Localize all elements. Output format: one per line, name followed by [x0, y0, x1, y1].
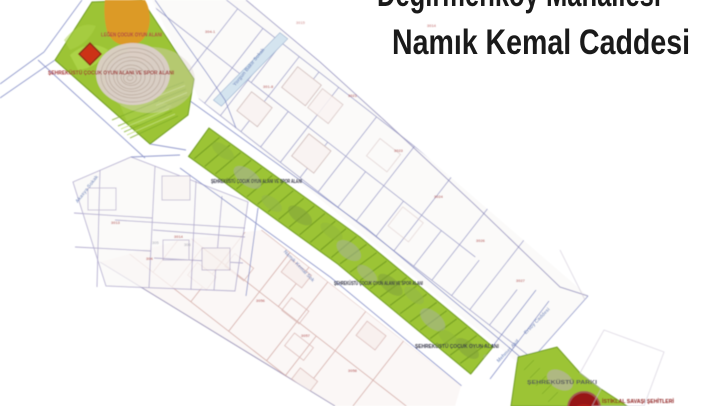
svg-text:301-8: 301-8 — [263, 84, 274, 89]
svg-text:304-1: 304-1 — [205, 29, 216, 34]
svg-text:3026: 3026 — [476, 238, 486, 243]
svg-text:3014: 3014 — [174, 234, 184, 239]
svg-text:İSTİKLAL SAVAŞI ŞEHİTLERİ: İSTİKLAL SAVAŞI ŞEHİTLERİ — [602, 398, 675, 405]
svg-text:3015: 3015 — [296, 20, 306, 25]
svg-text:3013: 3013 — [111, 220, 121, 225]
svg-text:ŞEHREKÜSTÜ ÇOCUK OYUN ALANI: ŞEHREKÜSTÜ ÇOCUK OYUN ALANI — [415, 343, 499, 350]
svg-text:3027: 3027 — [516, 278, 526, 283]
svg-text:3056: 3056 — [256, 298, 266, 303]
svg-text:LEĞEN ÇOCUK OYUN ALANI: LEĞEN ÇOCUK OYUN ALANI — [101, 31, 163, 39]
svg-text:305: 305 — [152, 240, 159, 245]
svg-text:3057: 3057 — [301, 333, 311, 338]
svg-text:Namık Kemal Caddesi: Namık Kemal Caddesi — [392, 23, 690, 62]
svg-text:3023: 3023 — [394, 148, 404, 153]
svg-text:306: 306 — [184, 242, 191, 247]
svg-text:3024: 3024 — [434, 194, 444, 199]
svg-text:3021: 3021 — [348, 93, 358, 98]
svg-text:ŞEHREKÜSTÜ ÇOCUK OYUN ALANI VE: ŞEHREKÜSTÜ ÇOCUK OYUN ALANI VE SPOR ALAN… — [48, 70, 175, 77]
svg-text:Değirmenköy Mahallesi: Değirmenköy Mahallesi — [377, 0, 661, 14]
svg-text:ŞEHREKÜSTÜ PARKI: ŞEHREKÜSTÜ PARKI — [527, 379, 598, 386]
svg-text:304: 304 — [146, 256, 153, 261]
svg-text:ŞEHREKÜSTÜ ÇOCUK OYUN ALANI VE: ŞEHREKÜSTÜ ÇOCUK OYUN ALANI VE SPOR ALAN… — [334, 280, 423, 287]
svg-text:3058: 3058 — [348, 368, 358, 373]
svg-text:ŞEHREKÜSTÜ ÇOCUK OYUN ALANI VE: ŞEHREKÜSTÜ ÇOCUK OYUN ALANI VE SPOR ALAN… — [211, 178, 302, 185]
